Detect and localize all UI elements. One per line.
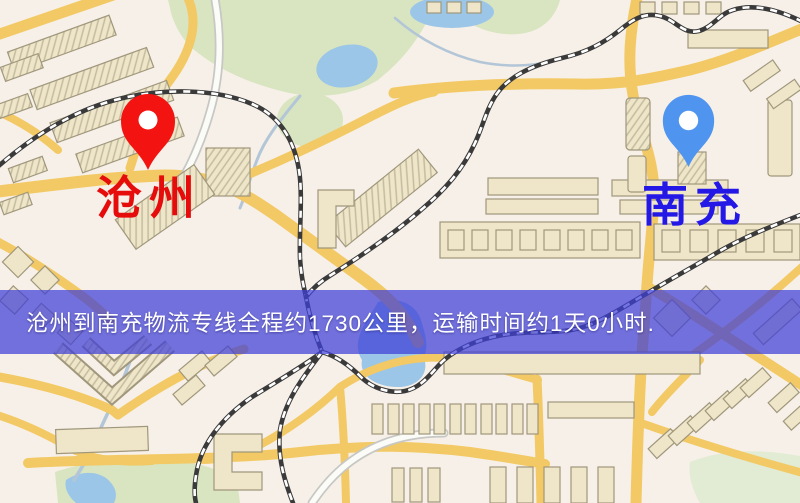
origin-city-label: 沧州 [96,176,202,222]
route-info-banner: 沧州到南充物流专线全程约1730公里，运输时间约1天0小时. [0,290,800,354]
destination-pin-shape [663,95,714,167]
origin-pin-hole [139,111,158,130]
route-info-text: 沧州到南充物流专线全程约1730公里，运输时间约1天0小时. [26,306,655,338]
origin-pin-shape [121,94,175,170]
origin-pin-icon[interactable] [118,90,178,172]
destination-pin-icon[interactable] [660,91,717,169]
destination-pin-hole [679,111,698,130]
destination-city-label: 南充 [642,183,748,229]
map-canvas [0,0,800,503]
logistics-route-map: 沧州 南充 沧州到南充物流专线全程约1730公里，运输时间约1天0小时. [0,0,800,503]
